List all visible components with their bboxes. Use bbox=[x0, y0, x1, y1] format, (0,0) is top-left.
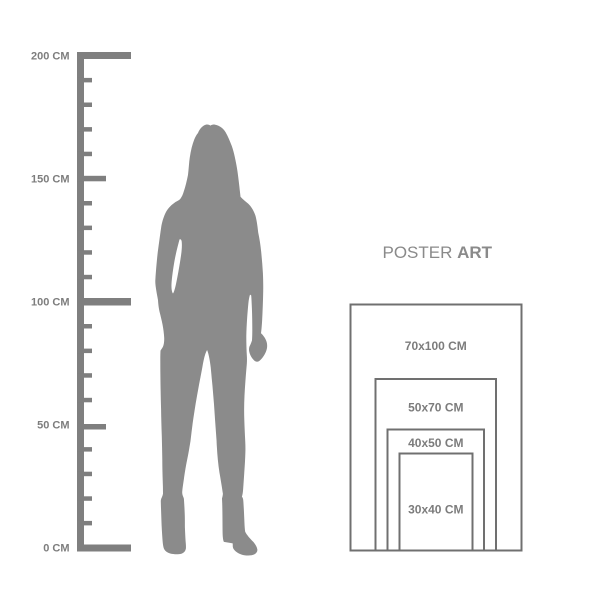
svg-text:50 CM: 50 CM bbox=[37, 420, 69, 432]
svg-text:30x40 CM: 30x40 CM bbox=[408, 503, 463, 517]
svg-text:100 CM: 100 CM bbox=[31, 297, 70, 309]
svg-text:POSTER ART: POSTER ART bbox=[383, 243, 493, 262]
svg-text:50x70 CM: 50x70 CM bbox=[408, 401, 463, 415]
svg-text:40x50 CM: 40x50 CM bbox=[408, 436, 463, 450]
svg-text:0 CM: 0 CM bbox=[43, 543, 69, 555]
svg-text:150 CM: 150 CM bbox=[31, 174, 70, 186]
svg-text:70x100 CM: 70x100 CM bbox=[405, 339, 467, 353]
svg-text:200 CM: 200 CM bbox=[31, 51, 70, 63]
